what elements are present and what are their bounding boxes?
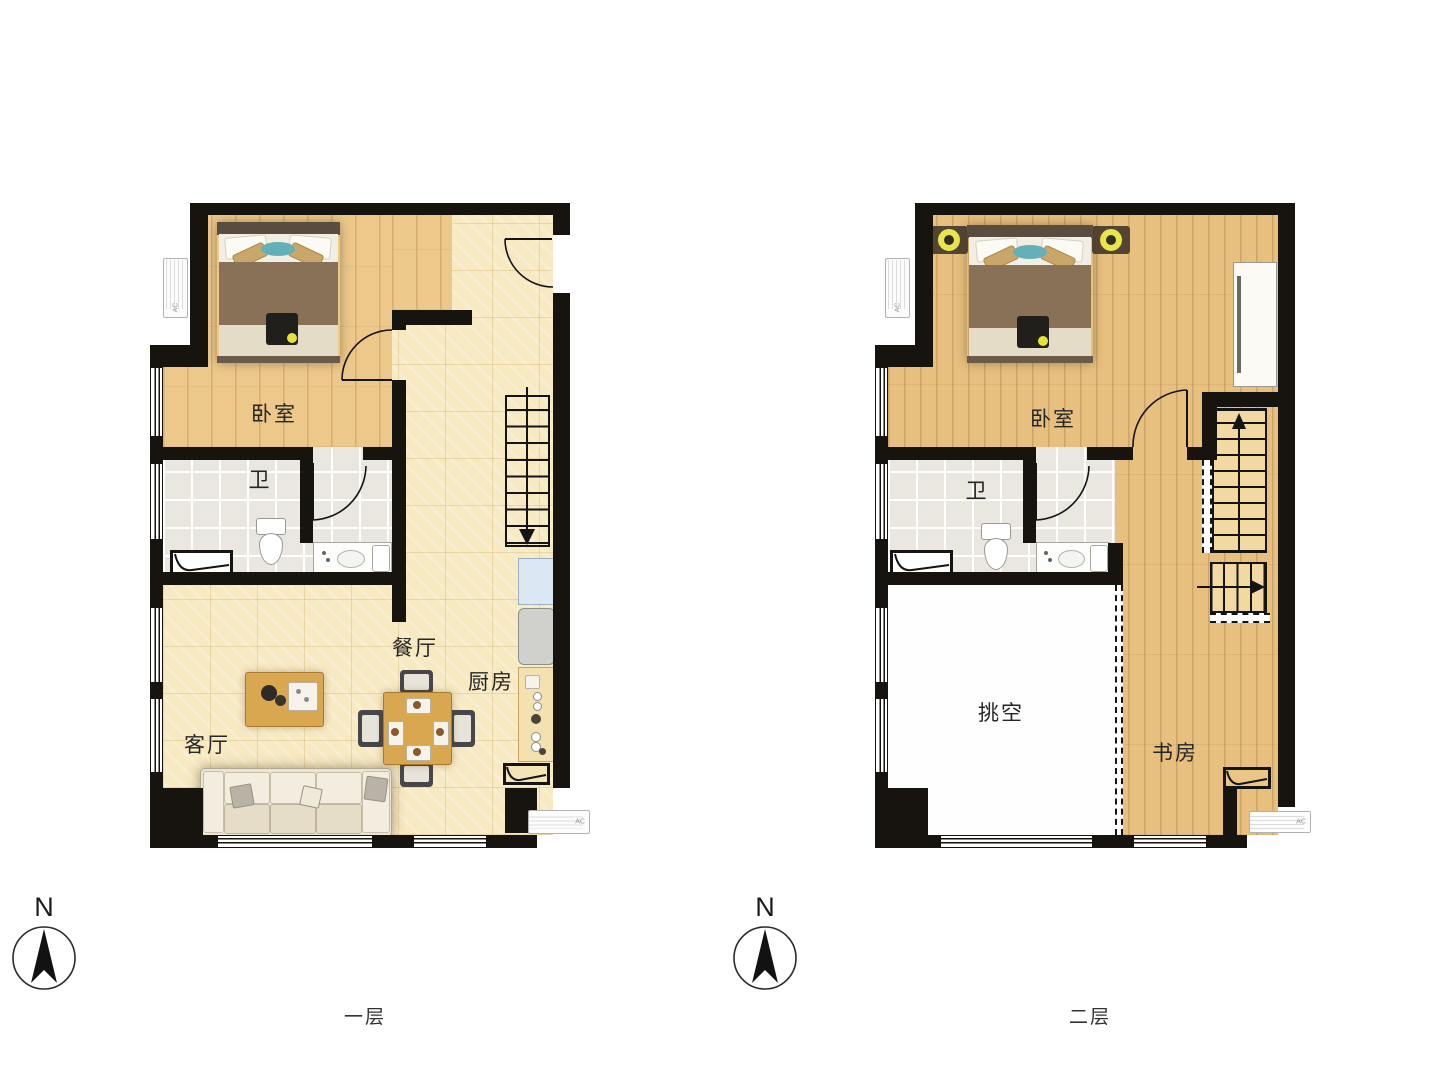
window (150, 463, 163, 540)
floor2-plan: AC AC 卧室 卫 挑空 书房 (875, 195, 1305, 855)
void-dashed-divider (1115, 585, 1123, 835)
kitchen-counter (518, 667, 555, 762)
sink-drain (539, 748, 546, 755)
bath-vanity (313, 542, 392, 574)
burner (533, 702, 542, 711)
ac-unit-label: AC (894, 303, 901, 313)
compass-n-letter: N (755, 892, 775, 922)
chair-cushion (404, 674, 429, 690)
wall-segment (875, 447, 1023, 460)
bed (217, 222, 340, 363)
wardrobe (1233, 262, 1277, 387)
plate (436, 728, 444, 736)
room-label-bedroom: 卧室 (242, 398, 306, 428)
bed-foot-rail (217, 356, 340, 363)
ac-unit: AC (885, 258, 910, 318)
floor1-plan: AC AC 卧室 卫 客厅 餐厅 厨房 (150, 195, 580, 855)
sofa-back-cushion (270, 804, 316, 834)
dining-chair (400, 670, 433, 694)
window (940, 835, 1093, 848)
window (875, 607, 888, 683)
chair-cushion (404, 766, 429, 782)
flue-shaft (503, 763, 550, 785)
compass-north-floor2: N (729, 888, 801, 998)
sofa-pillow (229, 783, 254, 808)
window (413, 835, 487, 848)
faucet-dot (1048, 558, 1052, 562)
compass-needle (31, 929, 57, 983)
sink-basin (337, 550, 365, 568)
bed-teal-pillow (261, 242, 295, 256)
dining-chair (448, 710, 475, 747)
dining-table (383, 692, 452, 765)
room-label-void: 挑空 (969, 697, 1033, 727)
washer (1090, 545, 1108, 572)
floorplan-canvas: AC AC 卧室 卫 客厅 餐厅 厨房 (0, 0, 1440, 1080)
wall-segment (553, 293, 570, 788)
bed-tray-lamp (1038, 336, 1048, 346)
bed-tray-lamp (287, 333, 297, 343)
compass-n-letter: N (34, 892, 54, 922)
wall-segment (392, 310, 406, 330)
burner (533, 692, 542, 701)
ac-unit: AC (1249, 811, 1311, 833)
window (150, 607, 163, 683)
ac-unit-label: AC (1296, 819, 1306, 826)
sofa-back-cushion (224, 804, 270, 834)
ac-unit: AC (163, 258, 188, 318)
wardrobe-door-line (1237, 276, 1241, 373)
wall-segment (150, 345, 208, 367)
dining-chair (358, 710, 385, 747)
plate (413, 701, 421, 709)
faucet-dot (322, 551, 326, 555)
room-label-study: 书房 (1143, 737, 1207, 767)
room-label-living: 客厅 (175, 729, 239, 759)
stove (525, 675, 540, 689)
burner (531, 732, 541, 742)
room-label-dining: 餐厅 (383, 632, 447, 662)
plate (413, 748, 421, 756)
window (150, 367, 163, 437)
table-lamp (1100, 229, 1122, 251)
bed (967, 225, 1093, 363)
ac-unit-label: AC (172, 303, 179, 313)
wall-segment (392, 380, 406, 447)
staircase-up (1212, 408, 1267, 553)
window (875, 698, 888, 773)
tray-dot (304, 697, 309, 702)
sofa-seat-cushion (316, 772, 362, 804)
ac-unit-label: AC (575, 819, 585, 826)
wall-segment (875, 572, 1123, 585)
compass-needle (752, 929, 778, 983)
bath-vanity (1036, 542, 1110, 574)
kitchen-appliance (518, 608, 555, 665)
sofa (200, 768, 392, 837)
bed-teal-pillow (1013, 245, 1047, 259)
stair-void-dashed-edge (1210, 613, 1270, 623)
room-label-kitchen: 厨房 (459, 666, 523, 696)
wall-segment (553, 203, 570, 235)
room-label-bath: 卫 (961, 475, 993, 505)
stair-void-dashed-edge (1202, 450, 1212, 553)
staircase-down (505, 395, 550, 547)
window (217, 835, 373, 848)
sofa-armrest (203, 771, 224, 833)
wall-segment (300, 447, 313, 543)
coffee-table (245, 672, 324, 727)
flue-shaft (1223, 767, 1271, 789)
floor1-caption: 一层 (150, 1002, 580, 1029)
wall-segment (150, 572, 396, 585)
ac-unit: AC (528, 810, 590, 834)
sofa-back-cushion (316, 804, 362, 834)
faucet-dot (1044, 551, 1048, 555)
window (150, 698, 163, 773)
wall-segment (915, 203, 933, 345)
kettle (275, 695, 286, 706)
staircase-lower-flight (1210, 562, 1267, 613)
faucet-dot (326, 558, 330, 562)
wall-segment (392, 447, 406, 622)
wall-segment (1223, 789, 1237, 835)
fridge (518, 558, 555, 605)
table-lamp (938, 229, 960, 251)
sofa-pillow (299, 785, 323, 809)
wall-segment (1202, 392, 1217, 450)
wall-segment (1087, 447, 1133, 460)
wall-segment (1278, 203, 1295, 807)
window (875, 463, 888, 540)
floor2-caption: 二层 (875, 1002, 1305, 1029)
sink-basin (1058, 550, 1085, 568)
wall-segment (1023, 447, 1036, 543)
wall-segment (190, 203, 208, 345)
window (1133, 835, 1207, 848)
plate (391, 728, 399, 736)
compass-north-floor1: N (8, 888, 80, 998)
wall-segment (875, 345, 933, 367)
washer (372, 545, 390, 572)
room-label-bath: 卫 (244, 464, 276, 494)
table-tray (288, 682, 318, 711)
wall-segment (190, 203, 570, 215)
chair-cushion (362, 715, 379, 742)
bed-foot-rail (967, 356, 1093, 363)
wall-segment (150, 447, 300, 460)
floor1-bedroom-wood-floor-ext (392, 215, 452, 310)
sofa-pillow (363, 776, 388, 803)
tray-dot (296, 689, 301, 694)
window (875, 367, 888, 437)
sink-drain (531, 714, 541, 724)
chair-cushion (454, 715, 471, 742)
room-label-bedroom: 卧室 (1021, 403, 1085, 433)
wall-segment (915, 203, 1295, 215)
